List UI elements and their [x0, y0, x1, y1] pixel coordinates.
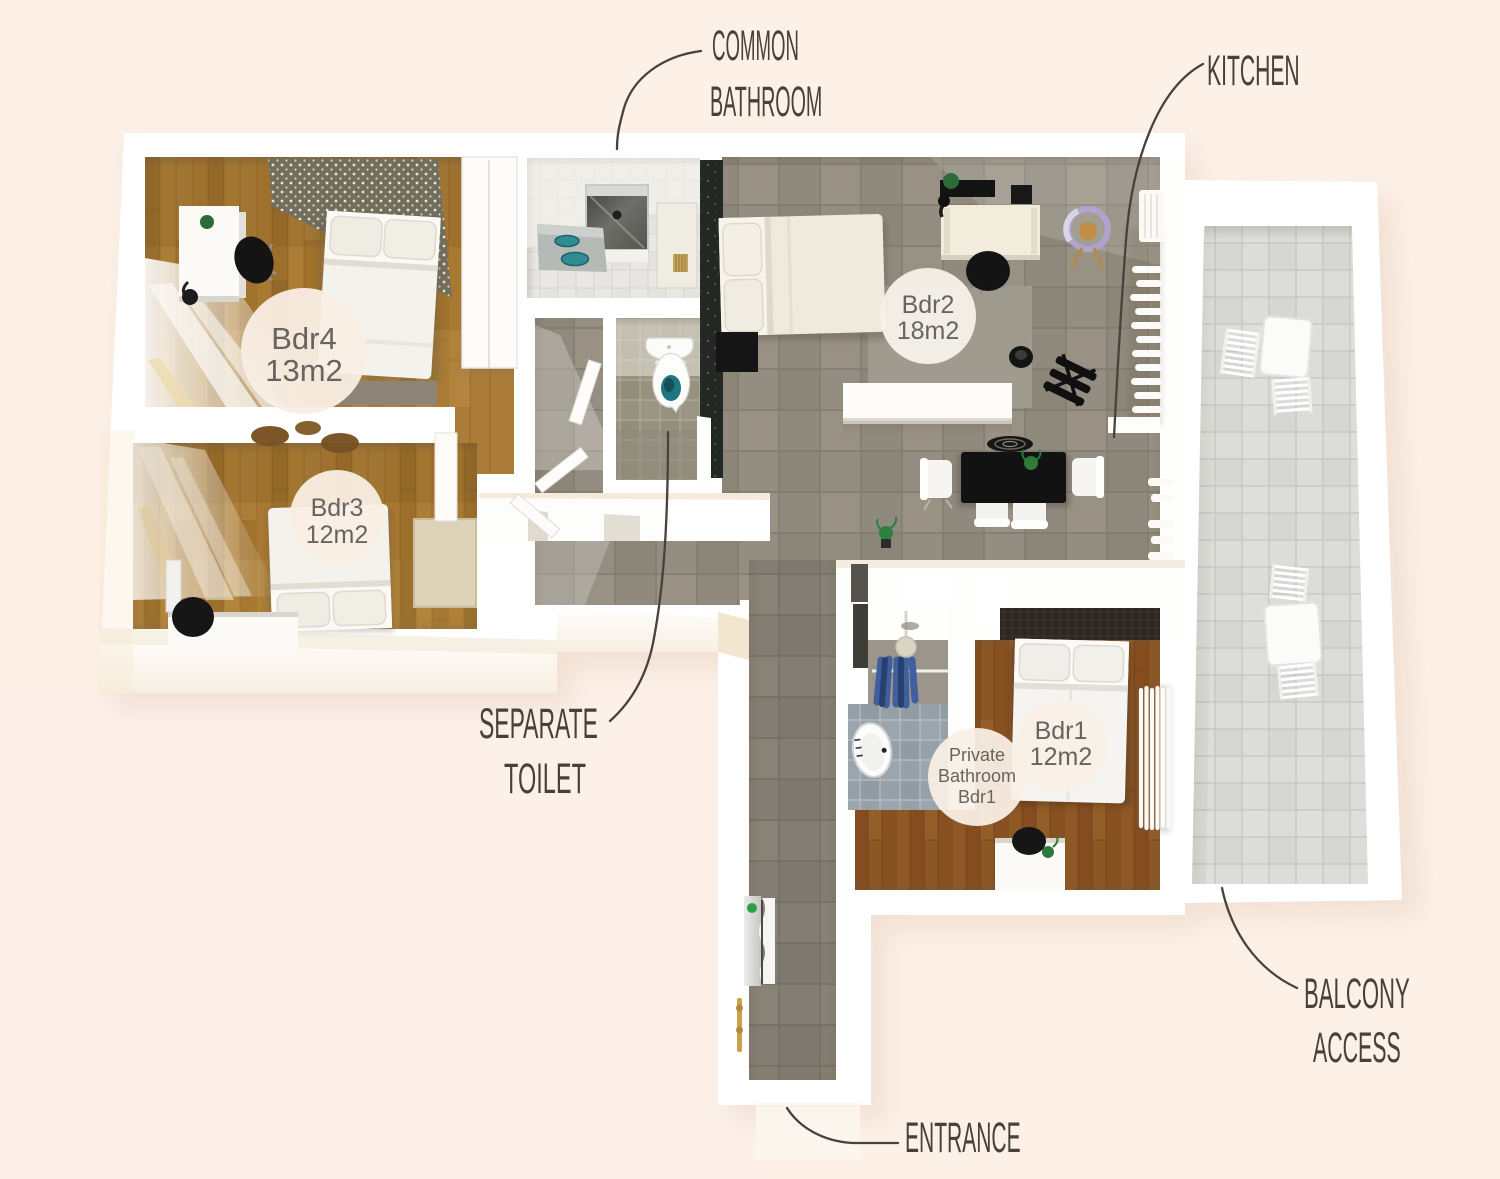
svg-text:13m2: 13m2 [265, 353, 343, 388]
svg-text:Bdr3: Bdr3 [311, 494, 364, 522]
svg-text:COMMON: COMMON [712, 21, 799, 69]
svg-text:Private: Private [949, 745, 1005, 765]
svg-text:Bdr1: Bdr1 [1035, 717, 1088, 745]
svg-text:ENTRANCE: ENTRANCE [905, 1113, 1021, 1161]
svg-text:18m2: 18m2 [897, 317, 960, 345]
svg-text:Bdr4: Bdr4 [271, 321, 336, 356]
svg-text:ACCESS: ACCESS [1313, 1023, 1401, 1071]
svg-text:TOILET: TOILET [504, 754, 586, 802]
svg-text:SEPARATE: SEPARATE [479, 699, 598, 747]
svg-text:BALCONY: BALCONY [1304, 969, 1410, 1017]
svg-text:KITCHEN: KITCHEN [1207, 46, 1300, 94]
svg-text:Bdr2: Bdr2 [902, 291, 955, 319]
svg-text:12m2: 12m2 [306, 521, 369, 549]
svg-text:BATHROOM: BATHROOM [710, 77, 822, 125]
svg-text:Bathroom: Bathroom [938, 766, 1016, 786]
svg-text:12m2: 12m2 [1030, 743, 1093, 771]
svg-text:Bdr1: Bdr1 [958, 787, 996, 807]
